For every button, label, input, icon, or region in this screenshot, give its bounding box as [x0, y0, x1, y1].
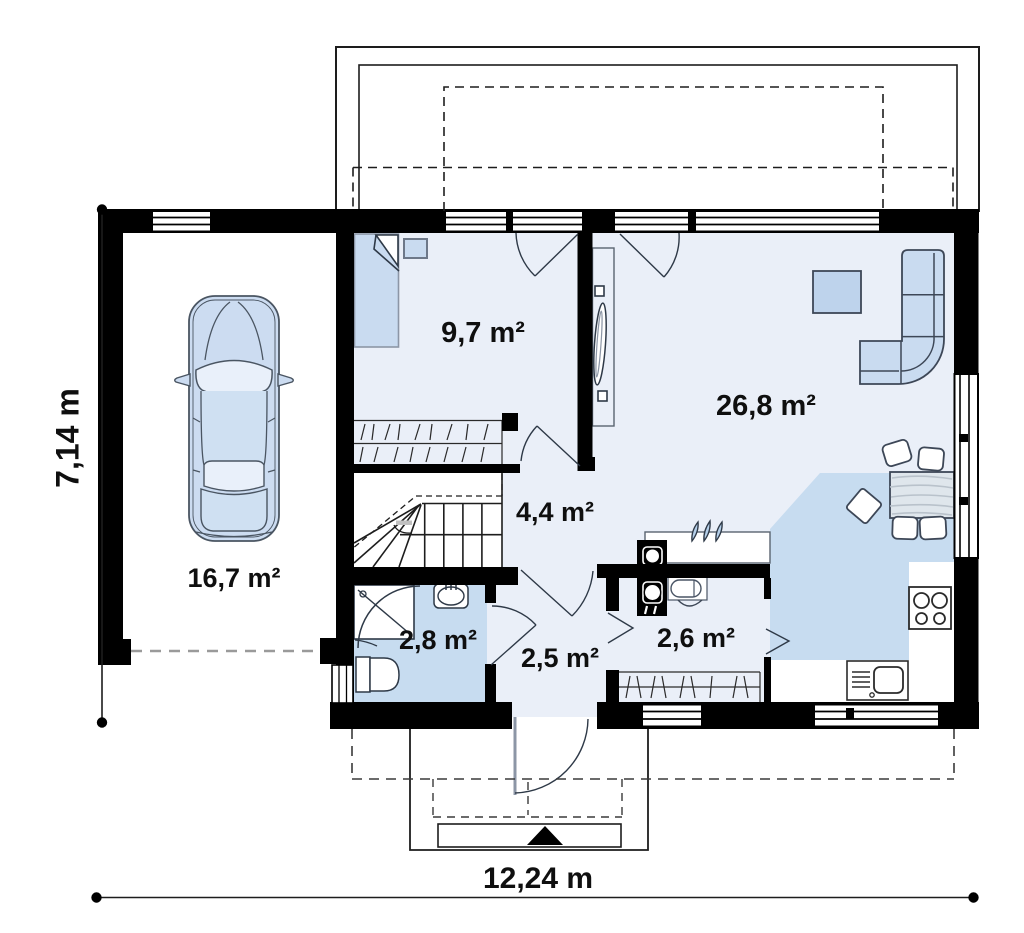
svg-text:2,6 m²: 2,6 m²: [657, 623, 735, 653]
svg-text:26,8 m²: 26,8 m²: [716, 390, 816, 422]
svg-text:2,5 m²: 2,5 m²: [521, 643, 599, 673]
svg-text:12,24 m: 12,24 m: [483, 862, 593, 895]
svg-text:9,7 m²: 9,7 m²: [441, 317, 525, 349]
svg-text:16,7 m²: 16,7 m²: [187, 563, 280, 593]
svg-text:4,4 m²: 4,4 m²: [516, 497, 594, 527]
svg-text:7,14 m: 7,14 m: [49, 388, 85, 488]
svg-text:2,8 m²: 2,8 m²: [399, 625, 477, 655]
